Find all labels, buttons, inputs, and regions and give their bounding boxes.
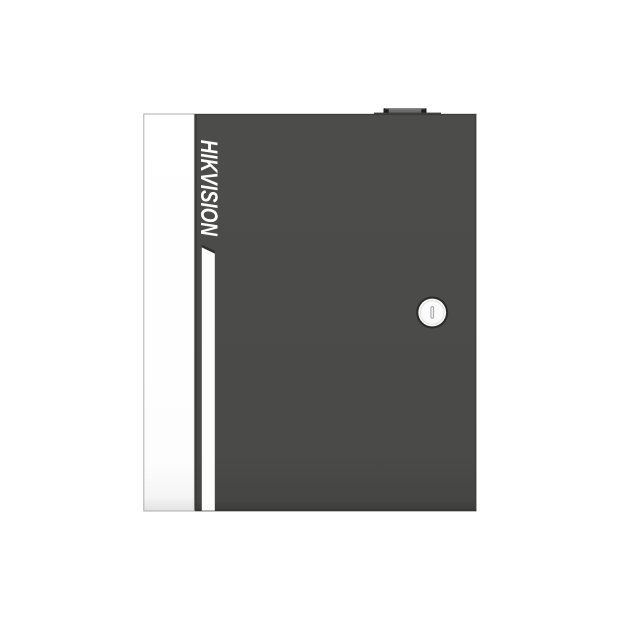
svg-text:HIKVISION: HIKVISION (195, 140, 223, 237)
